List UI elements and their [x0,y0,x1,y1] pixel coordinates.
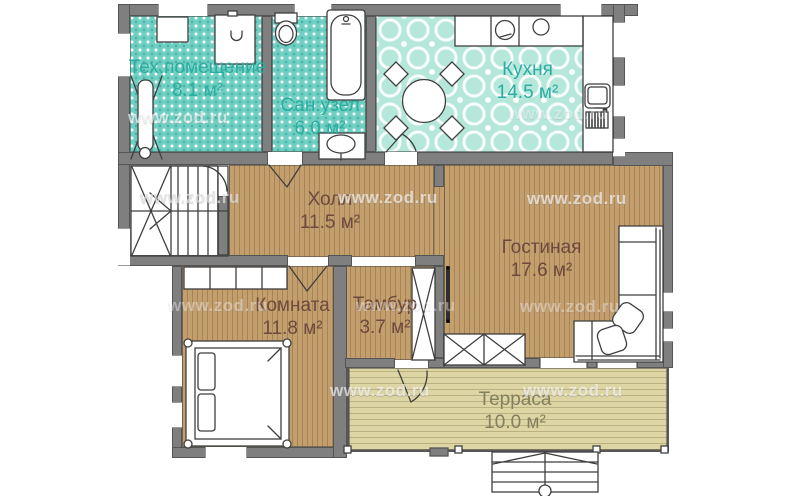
room-hall-floor [229,165,434,257]
entrance-steps [430,448,598,496]
staircase-area [130,165,218,258]
room-living-floor [444,165,663,358]
kitchen-counter-top [455,16,583,46]
floor-plan: Тех.помещение 8.1 м² Сан.узел 6.0 м² Кух… [0,0,795,496]
wall-living-bottom-l [444,358,540,368]
wall-tambour-bottom-r [428,358,444,368]
window [172,402,182,428]
window [663,292,673,312]
window [172,355,182,387]
terrace-deck [347,368,669,452]
window [613,138,625,157]
window [540,358,587,368]
room-tech-floor [130,16,262,152]
room-san-floor [272,16,366,152]
window [597,358,637,368]
wall-bedroom-bottom [172,447,347,458]
window [158,4,208,16]
window [118,33,130,77]
wall-living-bottom-m [587,358,597,368]
wall-hall-bottom-right [415,255,444,266]
wall-tech-san-divider [262,16,272,152]
wall-hall-bottom-mid [328,255,352,266]
window [294,4,332,16]
wall-tambour-bottom-l [345,358,395,368]
window [118,228,130,266]
window [205,447,247,458]
wall-hall-living-stub [434,165,444,187]
room-tambour-floor [345,266,434,360]
kitchen-counter-right [583,16,613,152]
wall-san-kitchen-divider [366,16,376,152]
wall-stairs-right [218,196,229,255]
wall-stairs-bottom [118,255,288,266]
window [560,4,602,16]
wall-mid-center [302,152,385,165]
wall-mid-left [118,152,268,165]
window [663,328,673,342]
wall-mid-right [417,152,613,165]
window [613,22,625,58]
window [613,85,625,117]
wall-tambour-right [434,266,444,358]
hall-living-opening [434,187,444,255]
room-bedroom-floor [182,266,335,447]
